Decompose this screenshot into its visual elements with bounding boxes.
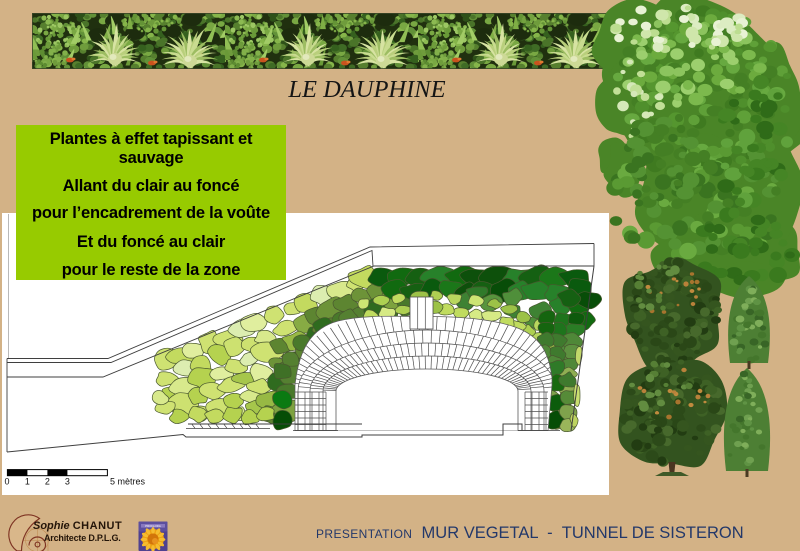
svg-text:3: 3: [65, 477, 70, 487]
svg-text:0: 0: [4, 477, 9, 487]
svg-text:2: 2: [45, 477, 50, 487]
svg-text:1: 1: [25, 477, 30, 487]
svg-text:5 mètres: 5 mètres: [110, 477, 146, 487]
